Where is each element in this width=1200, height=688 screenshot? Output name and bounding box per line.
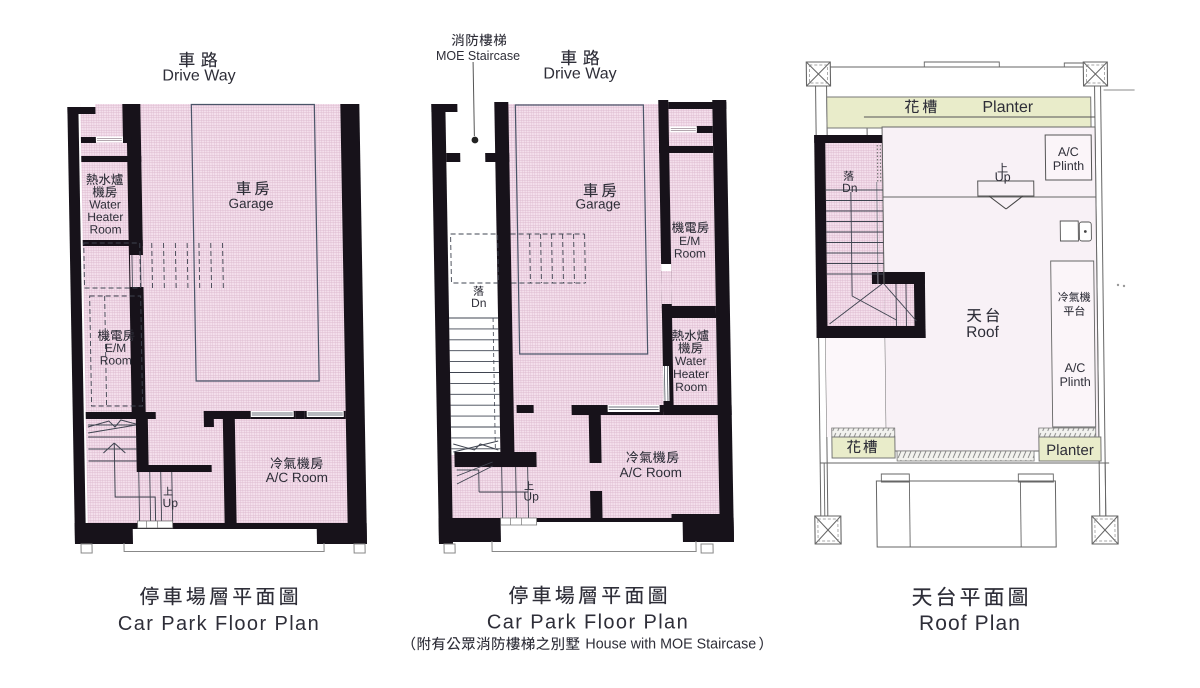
svg-text:Room: Room — [89, 223, 121, 237]
svg-text:Room: Room — [674, 247, 706, 261]
svg-text:Up: Up — [523, 490, 539, 504]
svg-text:Dn: Dn — [842, 181, 858, 195]
svg-text:Planter: Planter — [982, 99, 1034, 116]
svg-text:House with MOE Staircase: House with MOE Staircase — [585, 637, 756, 653]
svg-text:MOE Staircase: MOE Staircase — [436, 49, 520, 63]
svg-text:A/C: A/C — [1064, 361, 1085, 375]
svg-text:Heater: Heater — [673, 367, 709, 381]
svg-text:Drive Way: Drive Way — [162, 68, 235, 85]
svg-text:A/C Room: A/C Room — [619, 465, 682, 480]
svg-text:Plinth: Plinth — [1059, 375, 1090, 389]
svg-text:Car Park Floor Plan: Car Park Floor Plan — [487, 612, 689, 634]
svg-text:Water: Water — [675, 354, 707, 368]
svg-text:Plinth: Plinth — [1053, 159, 1084, 173]
svg-text:Drive Way: Drive Way — [543, 66, 616, 83]
svg-text:Room: Room — [675, 380, 707, 394]
svg-text:Up: Up — [162, 496, 178, 510]
svg-text:Room: Room — [100, 354, 132, 368]
svg-text:Garage: Garage — [575, 197, 620, 212]
svg-text:Roof Plan: Roof Plan — [919, 612, 1021, 635]
svg-text:Roof: Roof — [966, 324, 1000, 341]
svg-text:Up: Up — [995, 170, 1011, 184]
svg-text:A/C Room: A/C Room — [266, 470, 329, 485]
svg-text:Car Park Floor Plan: Car Park Floor Plan — [118, 613, 320, 635]
svg-text:Garage: Garage — [228, 196, 273, 211]
svg-text:A/C: A/C — [1058, 145, 1079, 159]
svg-text:Dn: Dn — [471, 296, 487, 310]
svg-text:Planter: Planter — [1046, 442, 1094, 459]
